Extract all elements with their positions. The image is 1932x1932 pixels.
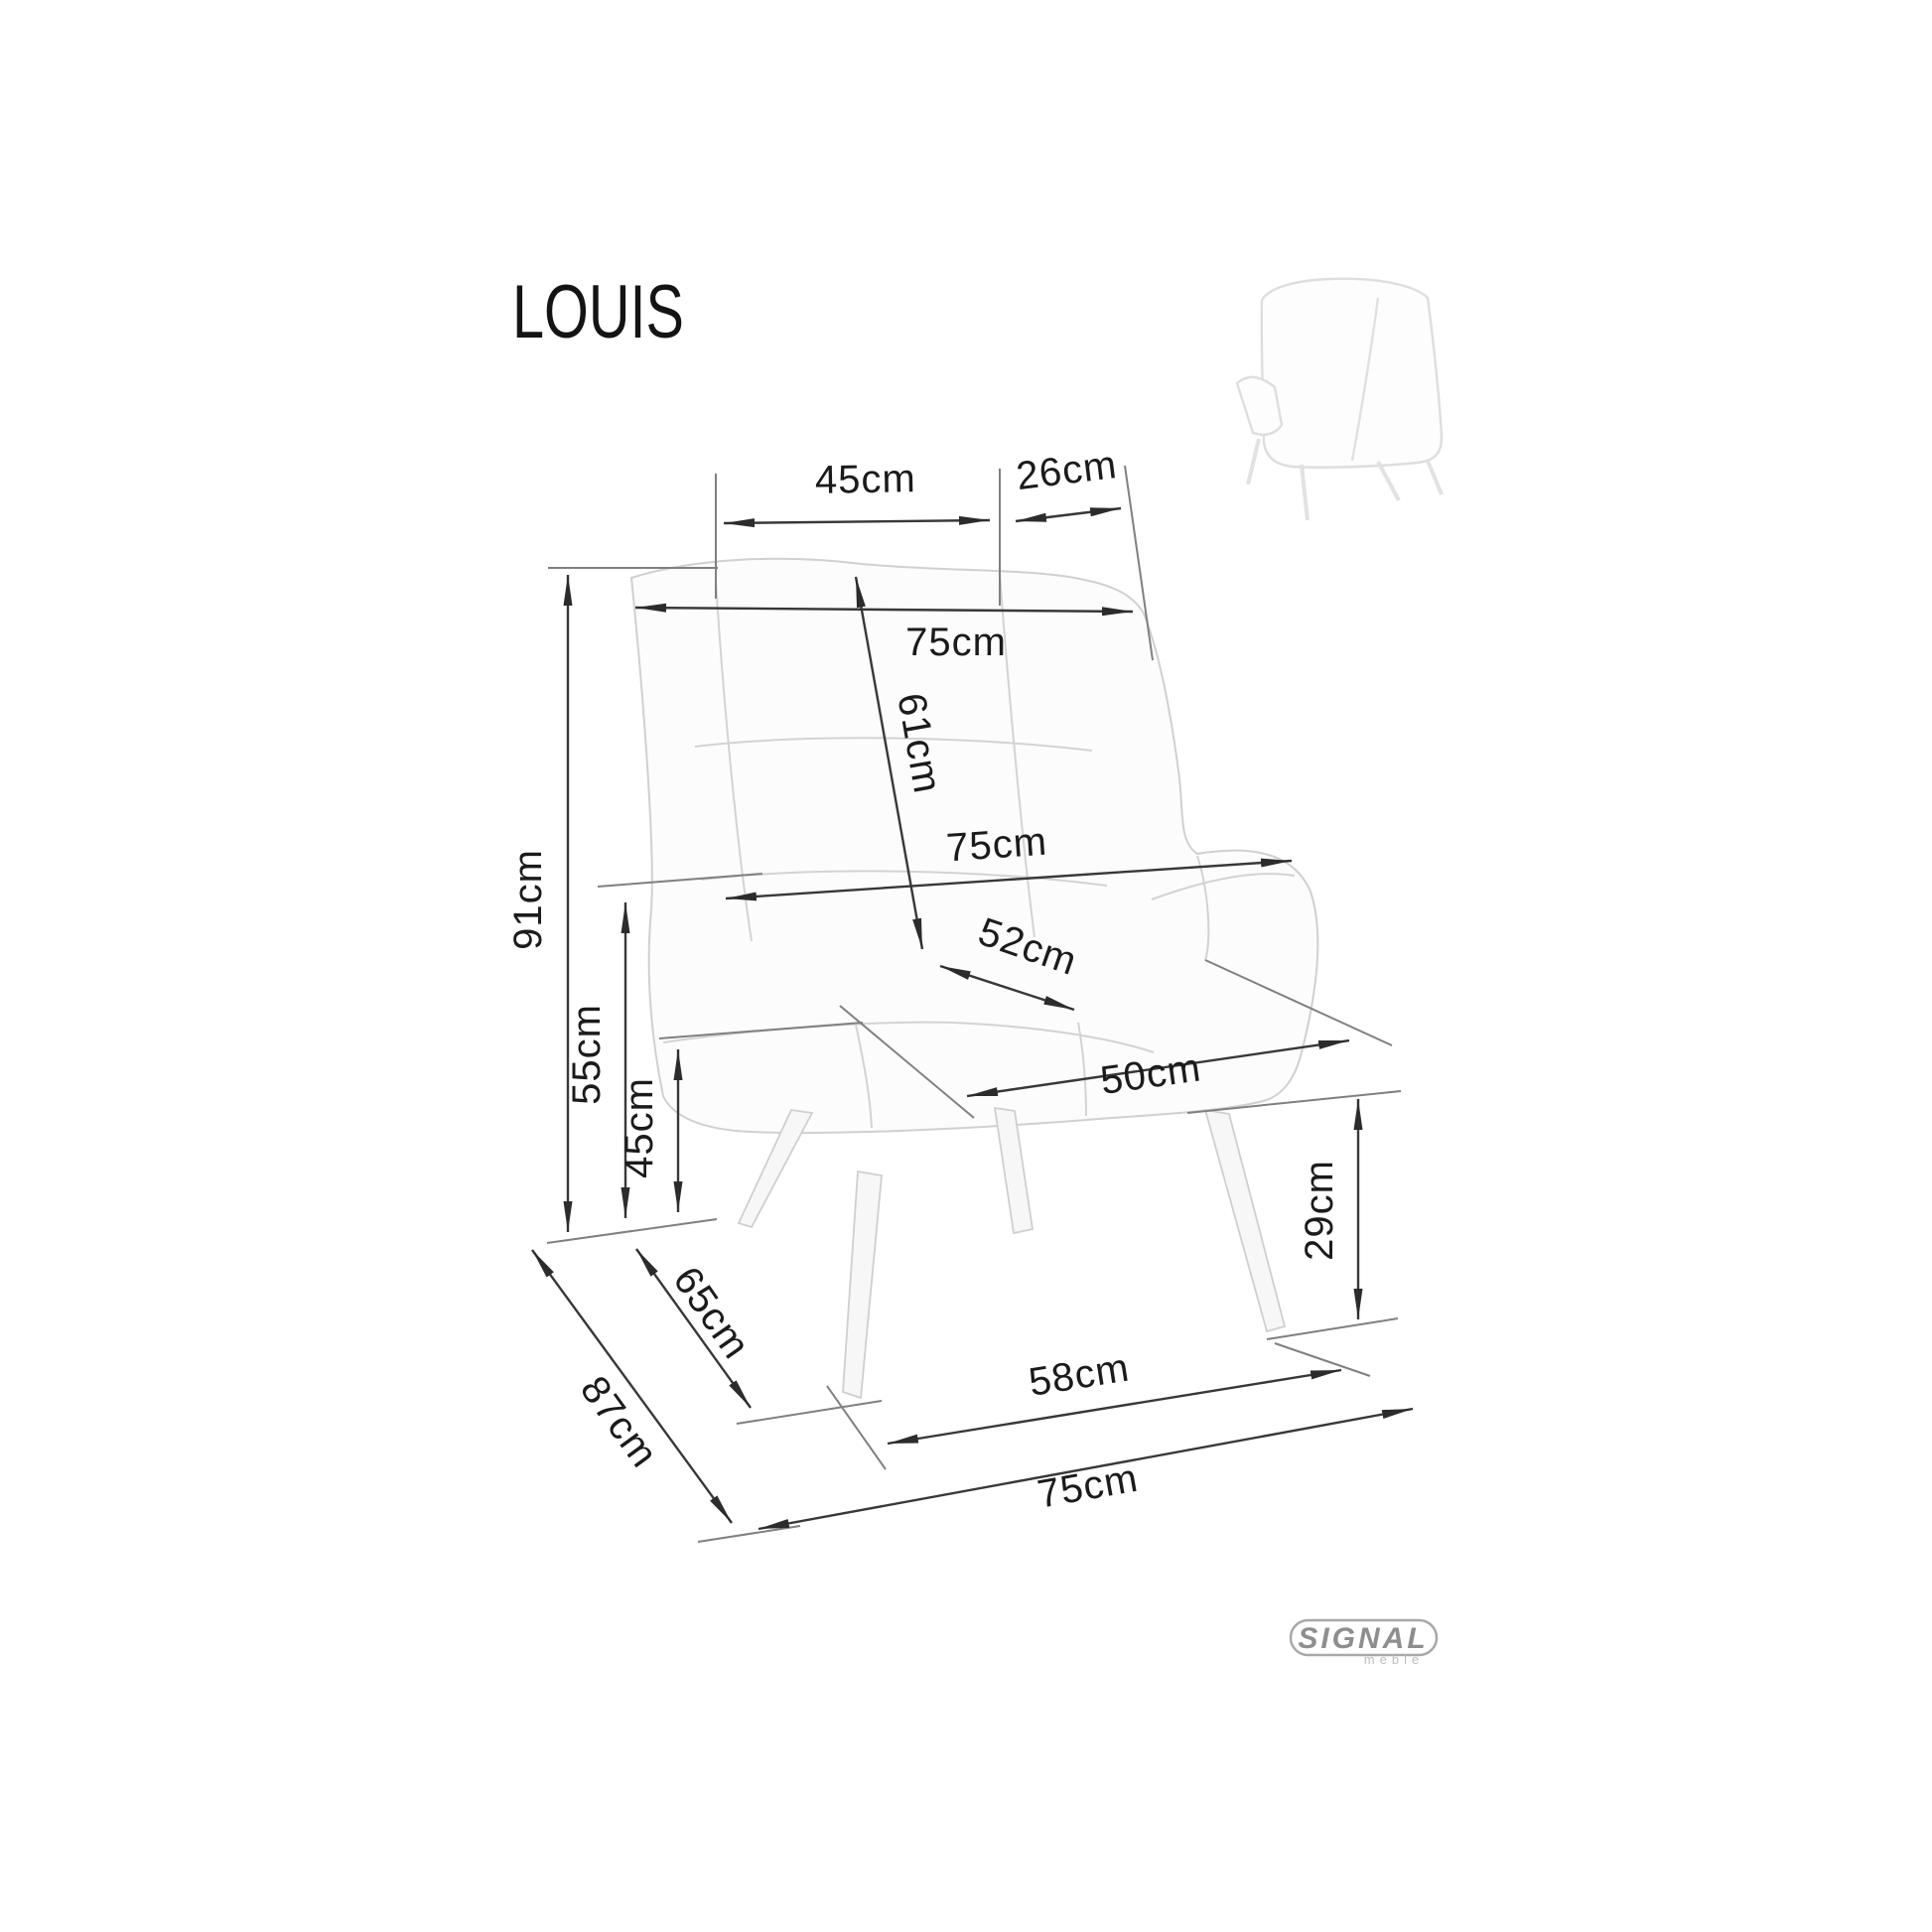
chair-leg-front-left (843, 1172, 882, 1398)
thumbnail-backrest (1262, 279, 1442, 468)
dim-leg-span-depth: 65cm (636, 1249, 759, 1408)
chair-leg-front-right (1205, 1110, 1285, 1331)
ext-floor-right (1267, 1318, 1398, 1339)
dim-label-leg-span-depth: 65cm (664, 1259, 758, 1367)
dim-label-overall-width-top: 75cm (905, 621, 1007, 664)
dim-wing-top-width: 26cm (1014, 443, 1121, 521)
dim-label-overall-width-floor: 75cm (1035, 1456, 1142, 1517)
ext-floor-back-left (547, 1219, 717, 1243)
ext-front-left-leg-line (827, 1386, 886, 1469)
dim-backrest-top-width: 45cm (724, 457, 990, 523)
dim-label-total-height: 91cm (506, 849, 550, 950)
dim-label-backrest-top-width: 45cm (814, 457, 916, 502)
dim-leg-height: 29cm (1298, 1099, 1358, 1319)
dim-label-front-leg-span: 58cm (1026, 1345, 1132, 1404)
dim-label-armrest-height: 55cm (565, 1004, 609, 1105)
brand-logo-text: SIGNAL (1298, 1622, 1428, 1655)
dim-front-leg-span: 58cm (888, 1345, 1341, 1444)
dimension-diagram: 45cm 26cm 75cm 61cm 91cm 75cm 52cm (0, 0, 1932, 1932)
ext-front-left-leg-floor (737, 1401, 882, 1424)
dim-label-leg-height: 29cm (1298, 1160, 1341, 1261)
dim-line-backrest-top-width (724, 520, 990, 523)
product-title: LOUIS (512, 270, 684, 354)
dim-total-height: 91cm (506, 575, 568, 1232)
dim-armrest-height: 55cm (565, 902, 625, 1218)
ext-front-right-leg-line (1275, 1343, 1370, 1376)
dim-label-wing-top-width: 26cm (1014, 443, 1119, 498)
brand-logo-subtext: meble (1364, 1652, 1424, 1667)
product-dimension-sheet: 45cm 26cm 75cm 61cm 91cm 75cm 52cm (0, 0, 1932, 1932)
dim-label-overall-width-mid: 75cm (945, 820, 1049, 871)
dim-line-wing-top-width (1016, 508, 1121, 521)
dim-label-overall-depth: 87cm (572, 1368, 666, 1475)
brand-logo: SIGNAL meble (1291, 1620, 1437, 1667)
chair-leg-back-right (995, 1108, 1033, 1233)
chair-back-thumbnail (1237, 279, 1442, 520)
dim-label-seat-height: 45cm (618, 1077, 661, 1178)
ext-floor-front-left-corner (698, 1526, 800, 1542)
